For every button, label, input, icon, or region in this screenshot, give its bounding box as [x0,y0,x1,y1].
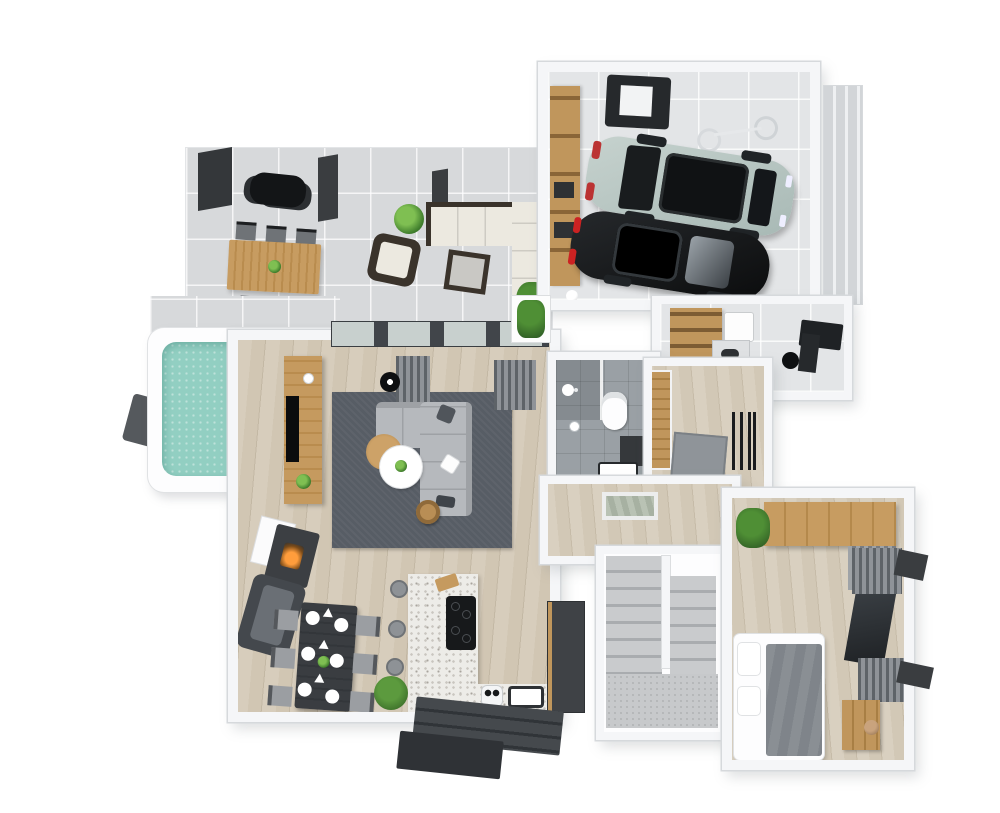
coffee-table-white [380,446,422,488]
room-garage [538,62,820,310]
induction-hob [446,596,476,650]
workbench [605,74,672,129]
room-stairs [596,546,728,740]
television [286,396,299,462]
outdoor-table [227,240,321,295]
side-table [416,500,440,524]
bar-stool [388,620,406,638]
stair-flight [670,576,716,674]
tall-cabinets [548,602,584,712]
place-setting [305,611,320,626]
washing-machine [724,312,754,342]
floor-plan [0,0,1000,813]
dining-table [294,602,357,712]
duvet [766,644,822,756]
dining-chair [273,609,298,631]
dresser [842,700,880,750]
candle [304,374,313,383]
bed-pillow [737,686,761,716]
vase [864,720,879,735]
bbq-grill [248,171,307,209]
garage-door [824,86,862,304]
place-setting [301,646,316,661]
soccer-ball [566,290,578,300]
desk [798,333,820,373]
curtain [494,360,536,410]
dining-chair [352,653,377,675]
table-centerpiece [268,260,282,274]
lounge-armchair [366,232,423,289]
plant [374,676,408,710]
room-bedroom [722,488,914,770]
plant [736,508,770,548]
stair-flight [606,556,662,676]
room-living-kitchen [228,330,560,722]
place-setting [297,682,312,697]
toilet [602,392,627,430]
pergola-post [198,147,232,211]
bed-pillow [737,642,761,676]
place-setting [329,653,344,668]
desk-chair [782,352,799,369]
floor-lamp [380,372,400,392]
place-setting [334,618,349,633]
outdoor-chair [235,221,256,240]
dining-chair [355,615,380,637]
kitchen-sink [508,686,544,708]
bedroom-window [844,587,896,667]
plant [395,460,407,472]
curtain [396,356,430,402]
cutting-board [435,573,460,592]
planter-box [512,296,550,342]
stair-landing [606,674,718,728]
plant [296,474,311,489]
place-setting [325,689,340,704]
dining-chair [267,685,292,707]
pergola-post [318,154,338,222]
coat-rack [732,412,756,470]
glass-floor-light [602,492,658,520]
wardrobe [764,502,896,546]
front-door [652,372,670,468]
table-centerpiece [317,655,330,668]
dining-chair [349,691,374,712]
tv-sideboard [284,356,322,504]
dining-chair [270,647,295,669]
shower-head [562,384,574,396]
bed [734,634,824,760]
lounge-ottoman [443,249,490,294]
bar-stool [386,658,404,676]
bar-stool [390,580,408,598]
tp-holder [570,422,579,431]
terrace-plant [394,204,424,234]
